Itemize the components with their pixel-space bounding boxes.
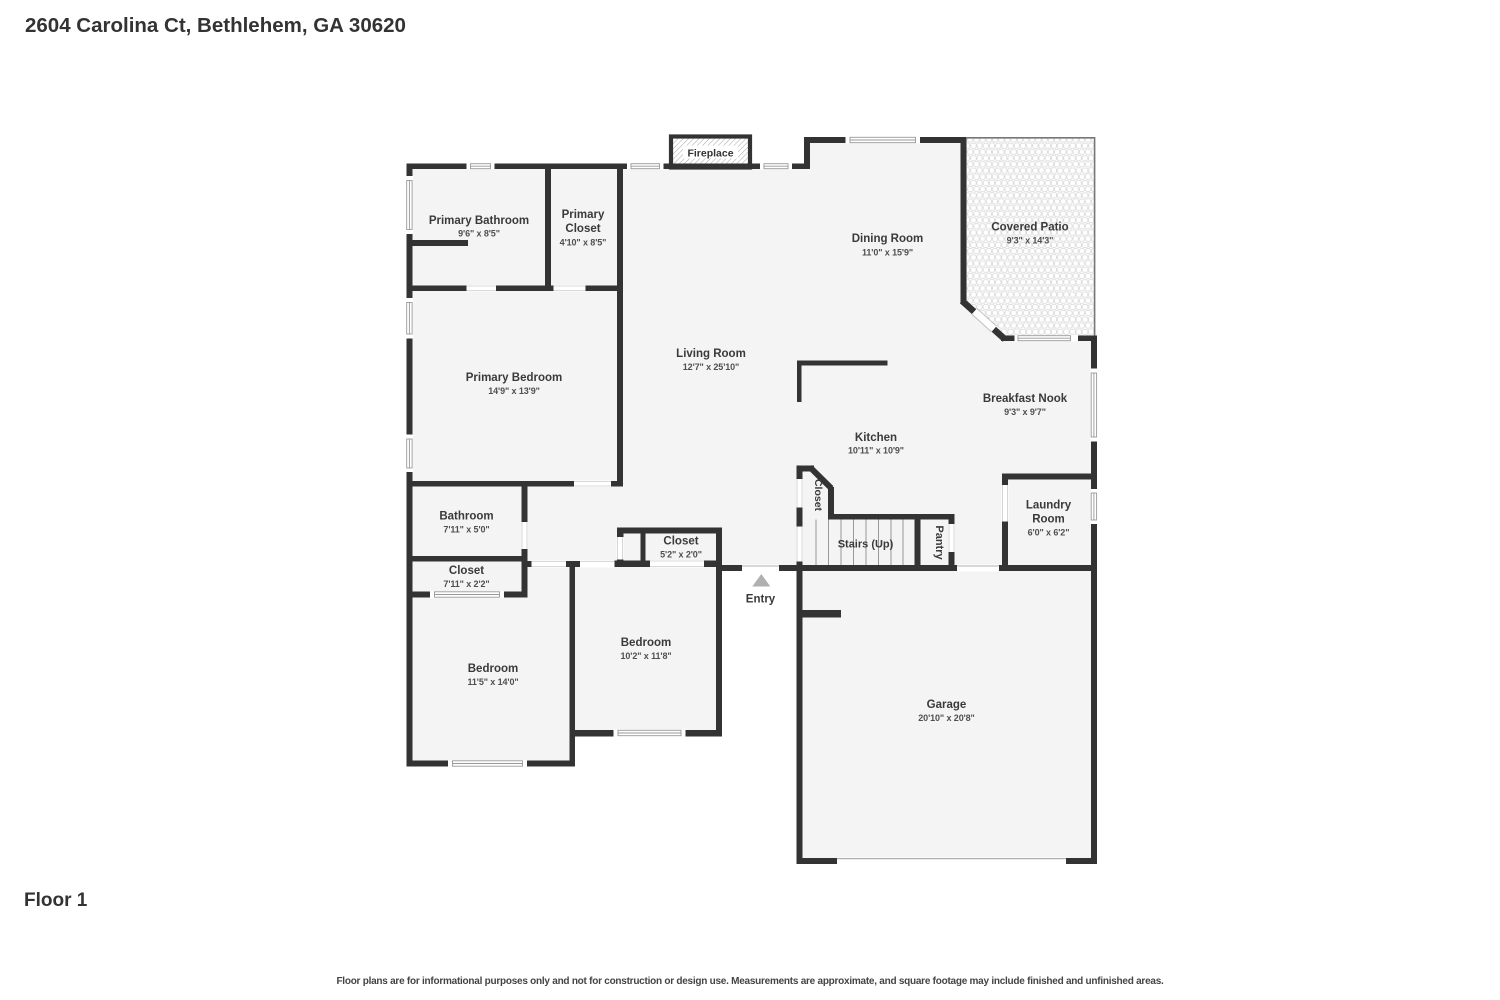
svg-text:Closet: Closet bbox=[663, 536, 698, 548]
svg-text:Garage: Garage bbox=[927, 699, 967, 711]
svg-text:Covered Patio: Covered Patio bbox=[991, 222, 1068, 234]
svg-text:Breakfast Nook: Breakfast Nook bbox=[983, 393, 1068, 405]
svg-text:Primary Bathroom: Primary Bathroom bbox=[429, 215, 529, 227]
svg-text:Closet: Closet bbox=[812, 479, 824, 512]
svg-text:Stairs (Up): Stairs (Up) bbox=[838, 539, 894, 551]
svg-text:5'2" x 2'0": 5'2" x 2'0" bbox=[660, 550, 702, 560]
svg-text:9'3" x 9'7": 9'3" x 9'7" bbox=[1004, 407, 1046, 417]
svg-text:Floor 1: Floor 1 bbox=[24, 890, 88, 911]
svg-text:Laundry: Laundry bbox=[1026, 500, 1072, 512]
svg-text:14'9" x 13'9": 14'9" x 13'9" bbox=[488, 386, 540, 396]
svg-text:Bedroom: Bedroom bbox=[468, 663, 518, 675]
svg-text:Floor plans are for informatio: Floor plans are for informational purpos… bbox=[336, 976, 1164, 987]
svg-text:Living Room: Living Room bbox=[676, 348, 746, 360]
svg-text:Closet: Closet bbox=[449, 565, 484, 577]
svg-text:20'10" x 20'8": 20'10" x 20'8" bbox=[918, 713, 974, 723]
svg-text:12'7" x 25'10": 12'7" x 25'10" bbox=[683, 362, 739, 372]
svg-text:Pantry: Pantry bbox=[933, 525, 945, 560]
svg-text:7'11" x 2'2": 7'11" x 2'2" bbox=[443, 579, 489, 589]
svg-text:11'5" x 14'0": 11'5" x 14'0" bbox=[467, 677, 518, 687]
svg-text:6'0" x 6'2": 6'0" x 6'2" bbox=[1028, 528, 1070, 538]
svg-text:9'6" x 8'5": 9'6" x 8'5" bbox=[458, 229, 500, 239]
svg-text:Dining Room: Dining Room bbox=[852, 233, 924, 245]
svg-text:Entry: Entry bbox=[746, 594, 776, 606]
svg-text:10'11" x 10'9": 10'11" x 10'9" bbox=[848, 446, 904, 456]
svg-text:Room: Room bbox=[1032, 514, 1065, 526]
svg-text:4'10" x 8'5": 4'10" x 8'5" bbox=[560, 238, 607, 248]
svg-text:9'3" x 14'3": 9'3" x 14'3" bbox=[1007, 236, 1054, 246]
svg-text:Closet: Closet bbox=[565, 223, 600, 235]
svg-text:2604 Carolina Ct, Bethlehem, G: 2604 Carolina Ct, Bethlehem, GA 30620 bbox=[25, 14, 406, 37]
svg-text:Kitchen: Kitchen bbox=[855, 432, 897, 444]
svg-text:Bathroom: Bathroom bbox=[439, 511, 493, 523]
svg-text:Primary Bedroom: Primary Bedroom bbox=[466, 372, 563, 384]
svg-text:Bedroom: Bedroom bbox=[621, 637, 671, 649]
svg-text:10'2" x 11'8": 10'2" x 11'8" bbox=[620, 651, 671, 661]
svg-text:Primary: Primary bbox=[562, 209, 605, 221]
svg-text:Fireplace: Fireplace bbox=[687, 148, 733, 160]
svg-text:7'11" x 5'0": 7'11" x 5'0" bbox=[443, 525, 489, 535]
svg-text:11'0" x 15'9": 11'0" x 15'9" bbox=[862, 248, 913, 258]
